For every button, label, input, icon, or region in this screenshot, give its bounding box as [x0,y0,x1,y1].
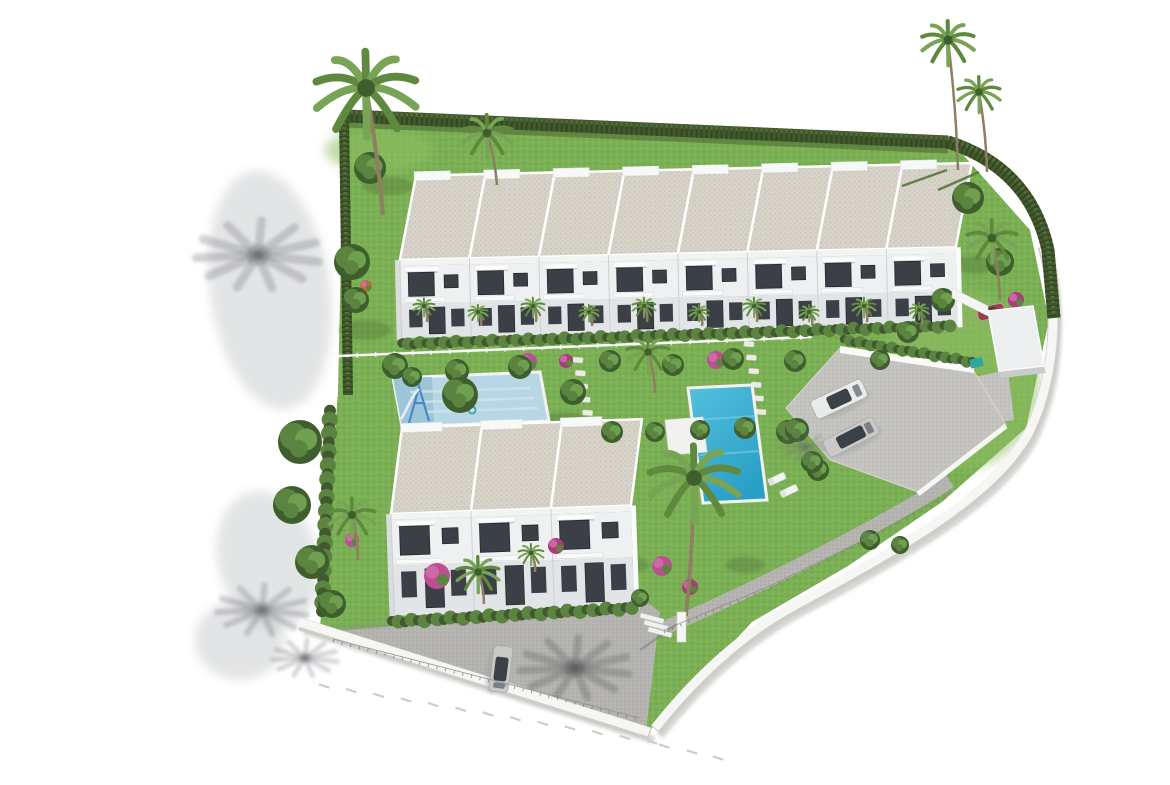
balcony-rail [752,289,792,294]
lower-window [561,566,577,593]
entrance-door [498,305,515,332]
palm-crown-center [862,304,866,308]
palm-crown-center [697,310,701,314]
lower-window [617,305,631,323]
palm-crown-center [476,310,480,314]
balcony-rail [683,291,723,296]
palm-crown-center [529,551,533,555]
roof-parapet-step [484,169,520,179]
palm-crown-center [531,304,535,308]
palm-crown-center [587,310,591,314]
tree-canopy-mid [567,391,577,401]
shape [247,244,269,266]
palm-crown-center [752,304,756,308]
stepping-stone [749,368,759,374]
tree-canopy-mid [283,503,298,518]
lower-window [451,569,467,596]
upper-window [478,271,504,295]
bougainvillea-highlight [426,566,439,579]
palm-crown-center [357,79,375,97]
roof-parapet-step [400,422,442,432]
shape [725,557,765,573]
bougainvillea-leaves [366,285,371,290]
stepping-stone [573,357,583,363]
upper-window-small [722,268,736,281]
stepping-stone [582,410,592,416]
lower-window [451,309,465,327]
bougainvillea-highlight [654,558,664,568]
window-awning [892,256,924,261]
shape [565,658,585,678]
gate-pillar [677,612,686,642]
palm-crown-center [943,35,952,44]
tree-canopy-mid [728,358,737,367]
bush [944,320,957,333]
lower-window [531,567,547,594]
tree-canopy-mid [636,597,643,604]
window-awning [545,264,577,269]
lower-window [401,571,417,598]
palm-crown-center [917,308,921,312]
lower-window [660,304,674,322]
flat-roof [388,425,485,514]
balcony-rail [405,297,445,302]
palm-crown-center [975,88,982,95]
tree-canopy-mid [740,427,749,436]
upper-window [686,266,712,290]
bougainvillea-leaves [1016,299,1023,306]
stepping-stone [575,370,585,376]
upper-window [479,523,510,553]
lower-window [729,302,743,320]
upper-window-small [602,522,619,538]
window-awning [823,258,855,263]
entrance-door [568,304,585,331]
roof-parapet-step [623,166,659,176]
palm-crown-center [483,129,492,138]
palm-crown-center [422,304,426,308]
tree-canopy-mid [452,393,466,407]
roof-parapet-step [560,417,602,427]
bougainvillea-leaves [690,586,697,593]
tree-canopy-mid [903,331,912,340]
balcony-rail [544,294,584,299]
upper-window-small [444,275,458,288]
upper-window [617,267,643,291]
balcony-rail [822,288,862,293]
window-awning [476,266,508,271]
lower-window [826,300,840,318]
site-plan-svg [0,0,1170,785]
tree-canopy-mid [790,360,799,369]
upper-window [895,261,921,285]
bougainvillea-highlight [708,353,717,362]
tree-canopy-mid [389,365,399,375]
roof-parapet-step [553,168,589,178]
bougainvillea-highlight [560,355,567,362]
tree-canopy-mid [938,299,948,309]
upper-window-small [930,264,944,277]
window-awning [406,267,438,272]
balcony-rail [474,295,514,300]
upper-window [825,263,851,287]
tree-canopy-mid [326,603,337,614]
bougainvillea-highlight [1009,294,1017,302]
flat-roof [548,419,645,508]
lower-window [610,564,626,591]
upper-window-small [583,272,597,285]
upper-window-small [861,265,875,278]
roof-parapet-step [480,419,522,429]
window-awning [684,261,716,266]
palm-crown-center [807,310,811,314]
upper-window-small [442,528,459,544]
roof-parapet-step [692,165,728,175]
palm-crown-center [348,511,356,519]
upper-window [399,526,430,556]
entrance-door [585,563,605,603]
roof-parapet-step [414,171,450,181]
entrance-door [429,307,446,334]
tree-canopy-mid [876,359,884,367]
window-awning [753,259,785,264]
roof-parapet-step [900,160,936,170]
tree-canopy-mid [344,260,358,274]
architectural-render-image [0,0,1170,785]
entrance-door [505,565,525,605]
roof-parapet-step [831,161,867,171]
tree-canopy-mid [363,166,376,179]
lower-window [548,306,562,324]
bougainvillea-highlight [549,540,557,548]
upper-window-small [791,267,805,280]
entrance-door [707,301,724,328]
palm-crown-center [988,234,997,243]
palm-crown-center [642,304,646,308]
shape [254,602,270,618]
entrance-door [776,299,793,326]
tree-canopy-mid [651,431,659,439]
tree-canopy-mid [290,440,308,458]
palm-crown-center [686,470,702,486]
tree-canopy-mid [605,360,614,369]
tree-canopy-mid [961,196,974,209]
bougainvillea-leaves [566,360,572,366]
tree-canopy-mid [408,376,416,384]
upper-window-small [522,525,539,541]
tree-canopy-mid [668,364,677,373]
lower-window [409,309,423,327]
bougainvillea-leaves [437,574,449,586]
tree-canopy-mid [896,544,903,551]
lower-window [895,298,909,316]
upper-window [756,264,782,288]
bougainvillea-highlight [361,281,367,287]
shape [299,652,311,664]
upper-window [547,269,573,293]
balcony-rail [891,286,931,291]
tree-canopy-mid [696,429,704,437]
stepping-stone [756,409,766,415]
tree-canopy-mid [607,431,616,440]
roof-parapet-step [762,163,798,173]
window-awning [615,262,647,267]
upper-window-small [652,270,666,283]
bougainvillea-leaves [662,565,671,574]
palm-crown-center [644,348,651,355]
stepping-stone [746,355,756,361]
bougainvillea-leaves [556,545,563,552]
stepping-stone [744,341,754,347]
tree-canopy-mid [350,299,360,309]
palm-crown-center [474,568,481,575]
upper-window-small [514,273,528,286]
townhouse-row-bottom [383,415,649,618]
balcony-rail [613,292,653,297]
tree-canopy-mid [304,560,318,574]
flat-roof [468,422,565,511]
tree-canopy-mid [515,366,525,376]
shape [800,442,809,451]
upper-window [408,272,434,296]
